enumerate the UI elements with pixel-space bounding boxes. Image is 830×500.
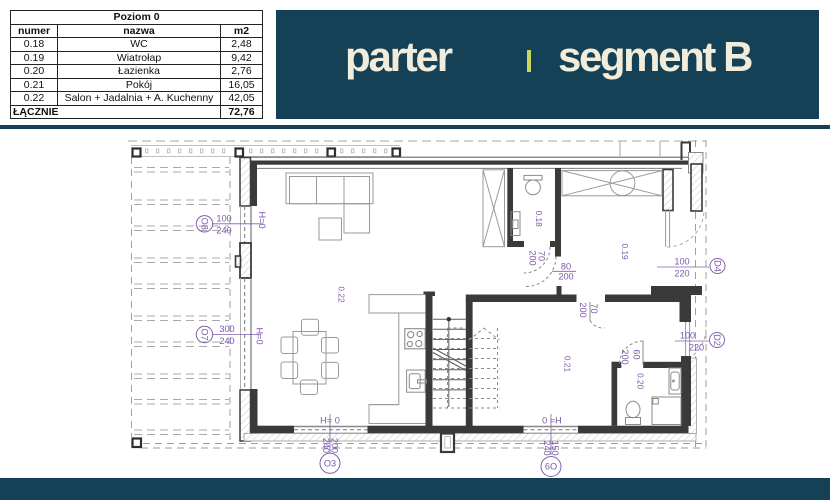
svg-text:0.19: 0.19 xyxy=(620,244,630,261)
svg-text:100: 100 xyxy=(674,257,689,267)
svg-text:220: 220 xyxy=(674,269,689,279)
svg-text:O8: O8 xyxy=(200,218,210,230)
svg-text:0 =H: 0 =H xyxy=(542,416,562,426)
svg-text:D4: D4 xyxy=(713,260,723,272)
svg-text:H=0: H=0 xyxy=(257,211,267,228)
svg-text:240: 240 xyxy=(216,225,231,235)
svg-text:200: 200 xyxy=(528,250,538,265)
svg-text:70: 70 xyxy=(537,251,547,261)
svg-text:80: 80 xyxy=(561,262,571,272)
svg-text:220: 220 xyxy=(689,343,704,353)
svg-text:O3: O3 xyxy=(324,458,336,468)
svg-text:100: 100 xyxy=(216,213,231,223)
svg-text:200: 200 xyxy=(578,302,588,317)
svg-text:70: 70 xyxy=(589,303,599,313)
svg-text:150: 150 xyxy=(550,440,560,455)
svg-text:D2: D2 xyxy=(712,334,722,346)
svg-text:240: 240 xyxy=(219,336,234,346)
svg-text:200: 200 xyxy=(558,272,573,282)
svg-text:0.22: 0.22 xyxy=(337,286,347,303)
svg-text:H= 0: H= 0 xyxy=(320,416,340,426)
svg-text:200: 200 xyxy=(330,438,340,453)
svg-text:0.21: 0.21 xyxy=(562,356,572,373)
svg-text:240: 240 xyxy=(321,438,331,453)
svg-text:300: 300 xyxy=(219,324,234,334)
svg-text:H=0: H=0 xyxy=(255,327,265,344)
svg-text:6O: 6O xyxy=(545,462,557,472)
svg-text:0.18: 0.18 xyxy=(534,211,544,228)
svg-text:60: 60 xyxy=(632,349,642,359)
svg-text:100: 100 xyxy=(680,331,695,341)
svg-text:0.20: 0.20 xyxy=(636,373,646,390)
svg-text:200: 200 xyxy=(620,349,630,364)
svg-text:O7: O7 xyxy=(200,328,210,340)
